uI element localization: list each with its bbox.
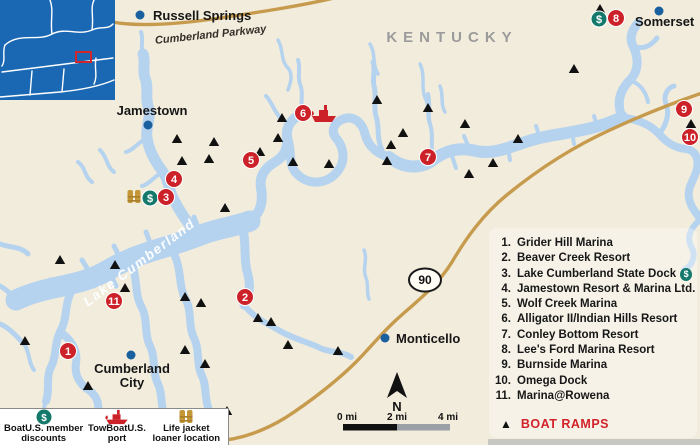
legend-item-name: Conley Bottom Resort xyxy=(517,328,638,343)
legend-item-name: Omega Dock xyxy=(517,374,587,389)
boatus-dollar-icon: $ xyxy=(36,410,52,424)
legend-item-name: Beaver Creek Resort xyxy=(517,251,630,266)
svg-text:4 mi: 4 mi xyxy=(438,412,458,423)
towboat-icon xyxy=(104,410,130,424)
svg-text:6: 6 xyxy=(300,108,306,120)
map-marker-5: 5 xyxy=(243,152,260,169)
legend-item-number: 6. xyxy=(492,312,511,327)
svg-text:$: $ xyxy=(147,193,153,205)
monticello-label: Monticello xyxy=(396,331,460,346)
scale-bar: 0 mi 2 mi 4 mi xyxy=(337,412,458,431)
svg-text:1: 1 xyxy=(65,346,71,358)
legend-item-name: Wolf Creek Marina xyxy=(517,297,617,312)
legend-item: 2. Beaver Creek Resort xyxy=(492,251,692,266)
legend-item-name: Lake Cumberland State Dock xyxy=(517,267,676,282)
svg-text:2 mi: 2 mi xyxy=(387,412,407,423)
svg-text:11: 11 xyxy=(108,296,120,308)
cumberland-city-label-line1: Cumberland xyxy=(94,361,170,376)
svg-text:0 mi: 0 mi xyxy=(337,412,357,423)
dollar-icon: $ xyxy=(591,11,607,27)
map-marker-10: 10 xyxy=(682,129,699,146)
key-label: Life jacket loaner location xyxy=(149,424,224,444)
legend-item: 3. Lake Cumberland State Dock $ xyxy=(492,267,692,282)
legend-item: 5. Wolf Creek Marina xyxy=(492,297,692,312)
legend-item-name: Lee's Ford Marina Resort xyxy=(517,343,655,358)
svg-text:3: 3 xyxy=(163,192,169,204)
key-item-towboat-port: TowBoatU.S. port xyxy=(85,410,148,445)
legend-item-name: Alligator II/Indian Hills Resort xyxy=(517,312,677,327)
page-edge xyxy=(488,439,700,445)
svg-text:4: 4 xyxy=(171,174,178,186)
svg-text:8: 8 xyxy=(613,13,619,25)
dollar-icon: $ xyxy=(680,268,692,281)
boat-ramp-icon: ▲ xyxy=(500,417,512,431)
somerset-label: Somerset xyxy=(635,14,695,29)
svg-text:5: 5 xyxy=(248,155,254,167)
legend-item-number: 7. xyxy=(492,328,511,343)
key-item-life-jacket: Life jacket loaner location xyxy=(149,410,224,445)
legend-item: 9. Burnside Marina xyxy=(492,358,692,373)
legend-item-name: Grider Hill Marina xyxy=(517,236,613,251)
legend-item: 10. Omega Dock xyxy=(492,374,692,389)
legend-item: 8. Lee's Ford Marina Resort xyxy=(492,343,692,358)
map-marker-1: 1 xyxy=(60,343,77,360)
marina-legend-panel: 1. Grider Hill Marina 2. Beaver Creek Re… xyxy=(489,228,697,438)
map-marker-11: 11 xyxy=(106,293,123,310)
monticello-dot xyxy=(381,334,390,343)
cumberland-city-dot xyxy=(127,351,136,360)
lake-cumberland-map: KENTUCKY Cumberland Parkway Lake Cumberl… xyxy=(0,0,700,445)
map-key-panel: $ BoatU.S. member discounts TowBoatU.S. … xyxy=(0,408,229,445)
legend-item: 6. Alligator II/Indian Hills Resort xyxy=(492,312,692,327)
route-90-shield: 90 xyxy=(409,269,441,292)
legend-item-number: 9. xyxy=(492,358,511,373)
svg-text:90: 90 xyxy=(418,273,432,287)
key-label: TowBoatU.S. port xyxy=(85,424,148,444)
legend-item-number: 4. xyxy=(492,282,511,297)
dollar-icon: $ xyxy=(142,190,158,206)
russell-springs-dot xyxy=(136,11,145,20)
svg-text:9: 9 xyxy=(681,104,687,116)
legend-item-name: Jamestown Resort & Marina Ltd. xyxy=(517,282,695,297)
key-label: BoatU.S. member discounts xyxy=(2,424,85,444)
legend-item-number: 10. xyxy=(492,374,511,389)
legend-item: 11. Marina@Rowena xyxy=(492,389,692,404)
map-marker-7: 7 xyxy=(420,149,437,166)
map-marker-3: 3 xyxy=(158,189,175,206)
svg-text:2: 2 xyxy=(242,292,248,304)
map-marker-8: 8 xyxy=(608,10,625,27)
legend-item-number: 2. xyxy=(492,251,511,266)
svg-text:10: 10 xyxy=(684,132,696,144)
cumberland-city-label-line2: City xyxy=(120,375,145,390)
boat-ramps-label: BOAT RAMPS xyxy=(521,417,609,431)
legend-item-number: 1. xyxy=(492,236,511,251)
legend-item-number: 8. xyxy=(492,343,511,358)
map-marker-9: 9 xyxy=(676,101,693,118)
life-jacket-icon xyxy=(178,410,194,424)
legend-item-number: 3. xyxy=(492,267,511,282)
map-marker-6: 6 xyxy=(295,105,312,122)
region-label: KENTUCKY xyxy=(386,29,517,46)
svg-text:$: $ xyxy=(596,14,602,26)
svg-text:7: 7 xyxy=(425,152,431,164)
map-marker-2: 2 xyxy=(237,289,254,306)
key-item-member-discounts: $ BoatU.S. member discounts xyxy=(2,410,85,445)
map-marker-4: 4 xyxy=(166,171,183,188)
legend-item: 7. Conley Bottom Resort xyxy=(492,328,692,343)
legend-item-number: 5. xyxy=(492,297,511,312)
jamestown-label: Jamestown xyxy=(117,103,188,118)
legend-item-name: Burnside Marina xyxy=(517,358,607,373)
boat-ramps-legend-row: ▲ BOAT RAMPS xyxy=(492,417,609,431)
jamestown-dot xyxy=(144,121,153,130)
kentucky-inset-map xyxy=(0,0,115,100)
legend-item: 4. Jamestown Resort & Marina Ltd. xyxy=(492,282,692,297)
legend-item-name: Marina@Rowena xyxy=(517,389,609,404)
russell-springs-label: Russell Springs xyxy=(153,8,251,23)
legend-item-number: 11. xyxy=(492,389,511,404)
legend-item: 1. Grider Hill Marina xyxy=(492,236,692,251)
marina-list: 1. Grider Hill Marina 2. Beaver Creek Re… xyxy=(492,236,692,404)
